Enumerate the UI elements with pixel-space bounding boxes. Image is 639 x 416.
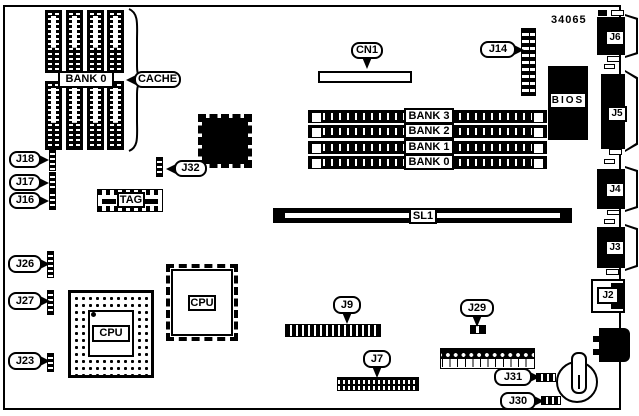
keyboard-connector-tab [593, 336, 599, 342]
tag-chip-pad [102, 199, 116, 204]
callout-j30: J30 [500, 392, 536, 410]
j14-callout: J14 [480, 41, 516, 58]
callout-j32: J32 [174, 160, 207, 177]
j4-dsub [625, 166, 638, 212]
cache-socket [45, 10, 62, 73]
cache-socket [87, 81, 104, 150]
edge-notch [607, 56, 620, 62]
callout-j17: J17 [9, 174, 41, 191]
j2-label: J2 [597, 287, 619, 304]
j3-label: J3 [605, 240, 625, 256]
edge-notch [611, 10, 624, 16]
power-connector [440, 348, 535, 369]
edge-notch [609, 149, 622, 155]
callout-j9: J9 [333, 296, 361, 314]
power-connector-pins [441, 349, 534, 359]
cache-socket [87, 10, 104, 73]
cache-socket [66, 10, 83, 73]
bank3-label: BANK 3 [404, 108, 454, 124]
cache-bank-label: BANK 0 [58, 71, 114, 88]
cache-socket [107, 81, 124, 150]
j4-label: J4 [605, 182, 625, 198]
j5-label: J5 [607, 106, 627, 122]
j7-header [337, 377, 419, 391]
callout-j31: J31 [494, 368, 532, 386]
tag-chip-pad [144, 199, 158, 204]
edge-notch [604, 64, 615, 69]
cn1-callout: CN1 [351, 42, 383, 59]
edge-notch [598, 10, 607, 16]
j9-header [285, 324, 381, 337]
cache-socket [66, 81, 83, 150]
sl1-label: SL1 [409, 208, 437, 224]
cpu-pga-label: CPU [92, 325, 130, 342]
edge-notch [606, 269, 619, 275]
jumper-j30 [541, 396, 561, 405]
jumper-j18 [49, 149, 56, 171]
keyboard-connector [599, 328, 630, 362]
callout-j27: J27 [8, 292, 42, 310]
cache-socket [107, 10, 124, 73]
j6-label: J6 [605, 30, 625, 46]
callout-j26: J26 [8, 255, 42, 273]
bank2-label: BANK 2 [404, 123, 454, 139]
chipset-qfp [198, 114, 252, 168]
tag-label: TAG [117, 192, 145, 208]
edge-notch [604, 159, 615, 164]
keyboard-connector-tab [593, 349, 599, 355]
j6-dsub [625, 14, 638, 58]
j14-header [521, 28, 536, 96]
cache-callout: CACHE [134, 71, 181, 88]
edge-notch [604, 219, 615, 224]
bank1-label: BANK 1 [404, 139, 454, 155]
cn1-connector [318, 71, 412, 83]
bios-label: BIOS [549, 92, 587, 109]
cache-socket [45, 81, 62, 150]
callout-j18: J18 [9, 151, 41, 168]
callout-j23: J23 [8, 352, 42, 370]
jumper-j17 [49, 172, 56, 192]
cpu-qfp-label: CPU [188, 295, 216, 311]
motherboard-diagram: 34065 BANK 0 CACHE J18 J17 J16 TAG J32 C… [0, 0, 639, 416]
power-connector-terminals [442, 359, 533, 367]
bank0-label: BANK 0 [404, 154, 454, 170]
part-number: 34065 [551, 14, 587, 26]
j3-dsub [625, 224, 638, 271]
callout-j7: J7 [363, 350, 391, 368]
cpu-pin1-dot [91, 312, 96, 317]
callout-j29: J29 [460, 299, 494, 317]
jumper-j32 [156, 157, 163, 177]
callout-j16: J16 [9, 192, 41, 209]
jumper-j16 [49, 190, 56, 210]
edge-notch [607, 210, 620, 215]
battery-clip [571, 352, 587, 394]
